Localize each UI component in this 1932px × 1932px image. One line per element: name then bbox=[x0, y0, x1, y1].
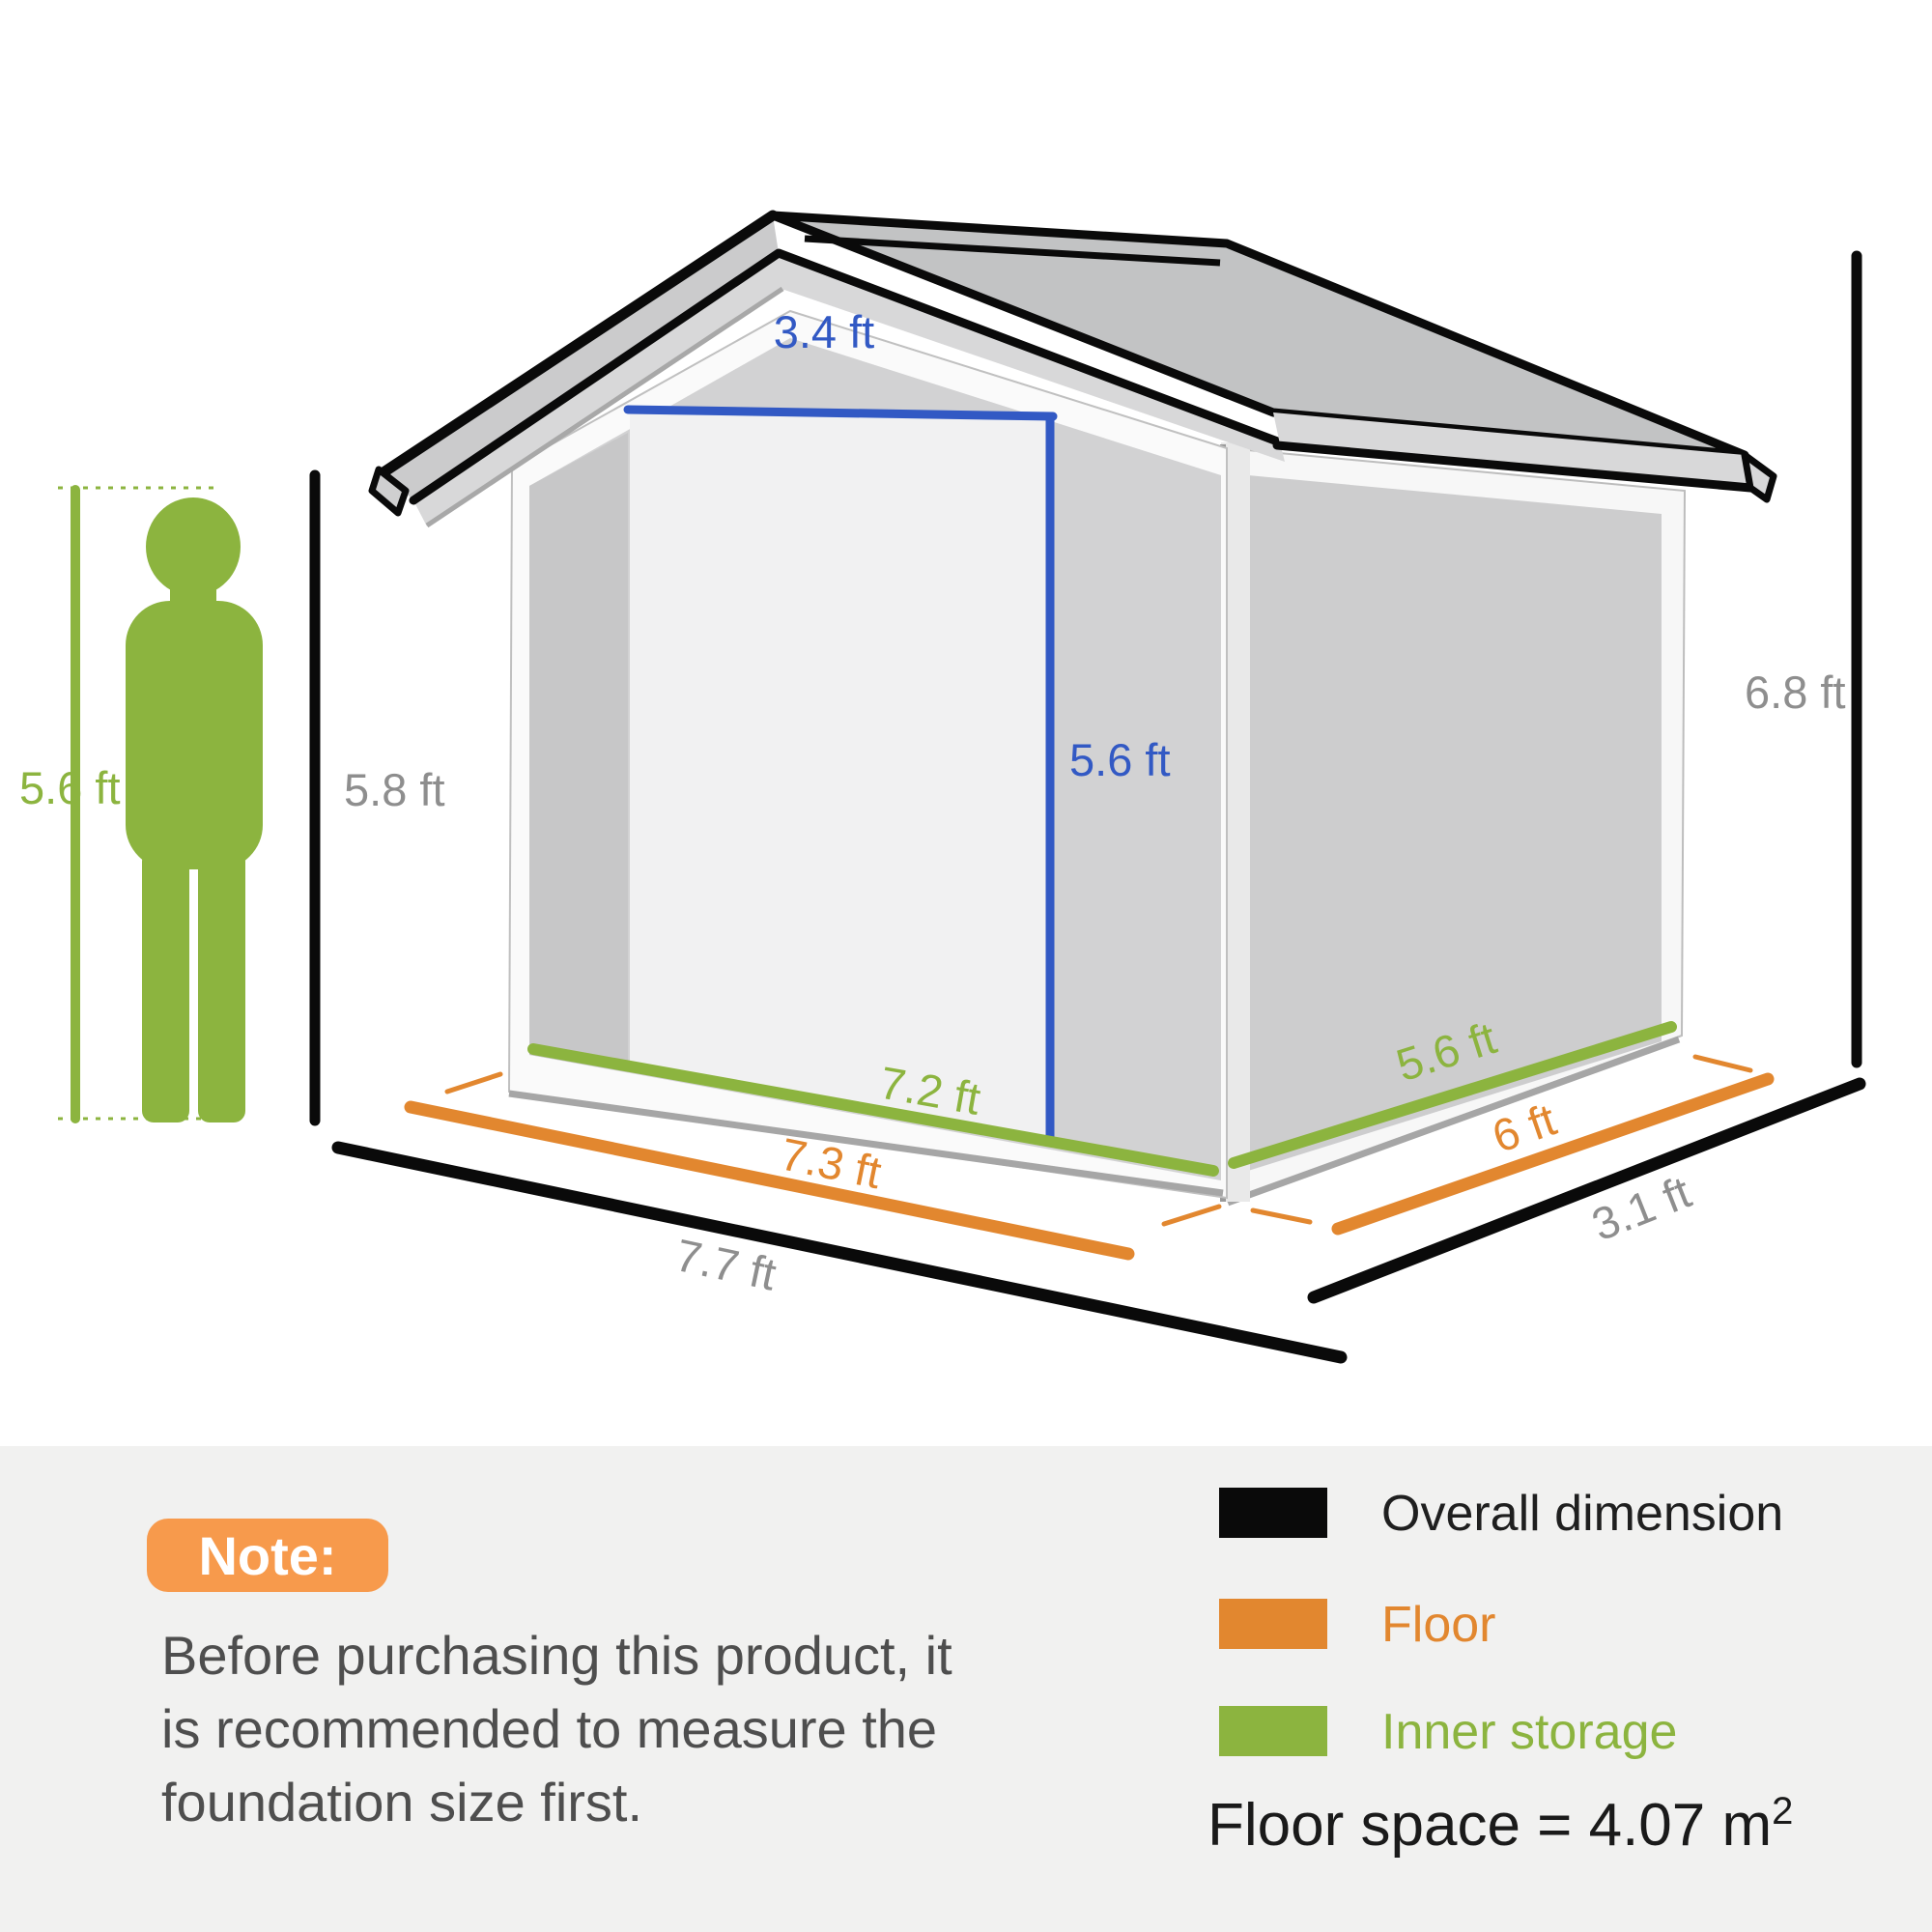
floor-space-text: Floor space = 4.07 m2 bbox=[1207, 1790, 1793, 1859]
shed-dimension-diagram: 5.6 ft 5.8 ft bbox=[0, 0, 1932, 1932]
front-wall-shade-strip bbox=[529, 433, 628, 1072]
legend-swatch-floor bbox=[1219, 1599, 1327, 1649]
door-opening bbox=[630, 411, 1050, 1141]
person-height-label: 5.6 ft bbox=[19, 762, 121, 813]
legend-label-inner: Inner storage bbox=[1381, 1704, 1677, 1760]
wall-height-label: 5.8 ft bbox=[344, 764, 445, 815]
legend-swatch-inner bbox=[1219, 1706, 1327, 1756]
note-line-2: is recommended to measure the bbox=[161, 1698, 937, 1759]
door-width-label: 3.4 ft bbox=[774, 306, 875, 357]
legend-label-overall: Overall dimension bbox=[1381, 1486, 1783, 1542]
door-height-label: 5.6 ft bbox=[1069, 734, 1171, 785]
overall-height-label: 6.8 ft bbox=[1745, 667, 1846, 718]
note-line-1: Before purchasing this product, it bbox=[161, 1625, 952, 1686]
note-badge-label: Note: bbox=[198, 1525, 336, 1586]
legend-swatch-overall bbox=[1219, 1488, 1327, 1538]
note-line-3: foundation size first. bbox=[161, 1772, 642, 1833]
legend-label-floor: Floor bbox=[1381, 1597, 1495, 1653]
